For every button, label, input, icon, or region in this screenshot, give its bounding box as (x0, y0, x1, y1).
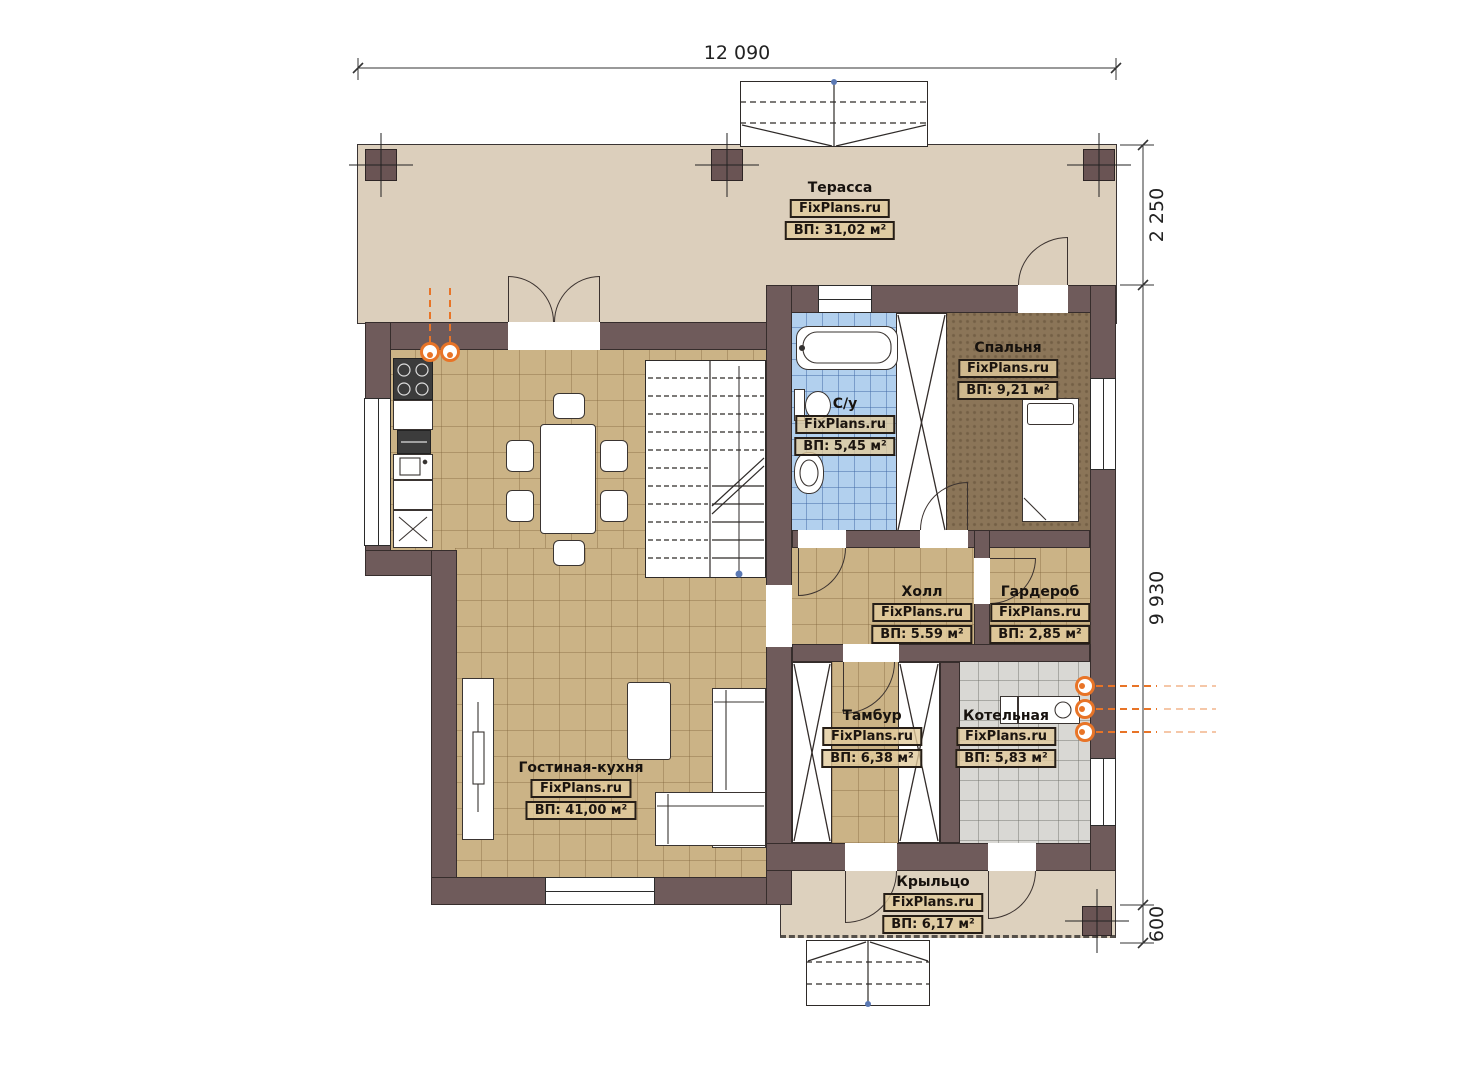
kitchen-sink (393, 454, 433, 480)
window (364, 398, 391, 546)
room-area: ВП: 5,45 м² (794, 437, 895, 456)
boiler-door-opening (988, 843, 1036, 871)
wall (431, 550, 457, 905)
room-area: ВП: 9,21 м² (957, 381, 1058, 400)
door-opening (920, 530, 968, 548)
fixplans-watermark: FixPlans.ru (531, 779, 631, 798)
room-area: ВП: 2,85 м² (989, 625, 1090, 644)
chair (506, 490, 534, 522)
room-area: ВП: 6,38 м² (821, 749, 922, 768)
wall (792, 644, 1090, 662)
chair (553, 540, 585, 566)
room-name: Гостиная-кухня (518, 760, 643, 776)
staircase (645, 360, 766, 578)
room-name: Тамбур (821, 708, 922, 724)
entrance-door-opening (845, 843, 897, 871)
door-opening (798, 530, 846, 548)
room-area: ВП: 41,00 м² (526, 801, 636, 820)
chair (600, 490, 628, 522)
kitchen-counter (393, 400, 433, 430)
floor-plan: 12 090 2 250 9 930 600 Терасса FixPlans.… (0, 0, 1473, 1080)
dimension-terrace-depth: 2 250 (1146, 188, 1168, 242)
fixplans-watermark: FixPlans.ru (822, 727, 922, 746)
pillow (1027, 403, 1074, 425)
window (1090, 378, 1116, 470)
window (545, 877, 655, 905)
room-label-bathroom: С/у FixPlans.ru ВП: 5,45 м² (794, 396, 895, 456)
room-label-porch: Крыльцо FixPlans.ru ВП: 6,17 м² (882, 874, 983, 934)
room-name: Крыльцо (882, 874, 983, 890)
column (1083, 149, 1115, 181)
dimension-top-width: 12 090 (704, 42, 770, 64)
fixplans-watermark: FixPlans.ru (790, 199, 890, 218)
tv-stand (462, 678, 494, 840)
fixplans-watermark: FixPlans.ru (883, 893, 983, 912)
dimension-house-depth: 9 930 (1146, 571, 1168, 625)
fixplans-watermark: FixPlans.ru (956, 727, 1056, 746)
dining-table (540, 424, 596, 534)
stove (393, 358, 433, 400)
room-label-bedroom: Спальня FixPlans.ru ВП: 9,21 м² (957, 340, 1058, 400)
porch-exterior-steps (806, 940, 930, 1006)
terrace-exterior-steps (740, 81, 928, 147)
wall (766, 843, 1116, 871)
fixplans-watermark: FixPlans.ru (958, 359, 1058, 378)
bathtub (796, 326, 898, 370)
sofa-chaise (655, 792, 766, 846)
room-label-hall: Холл FixPlans.ru ВП: 5.59 м² (871, 584, 972, 644)
pedestal-sink (794, 452, 824, 494)
room-name: Котельная (955, 708, 1056, 724)
room-label-vestibule: Тамбур FixPlans.ru ВП: 6,38 м² (821, 708, 922, 768)
window (818, 285, 872, 313)
room-label-boiler: Котельная FixPlans.ru ВП: 5,83 м² (955, 708, 1056, 768)
room-name: Спальня (957, 340, 1058, 356)
fixplans-watermark: FixPlans.ru (872, 603, 972, 622)
living-hall-opening (766, 585, 792, 647)
window (1090, 758, 1116, 826)
chair (600, 440, 628, 472)
column (711, 149, 743, 181)
fixplans-watermark: FixPlans.ru (990, 603, 1090, 622)
door-opening (974, 558, 990, 604)
kitchen-counter (393, 480, 433, 510)
room-name: С/у (794, 396, 895, 412)
dishwasher (393, 510, 433, 548)
fixplans-watermark: FixPlans.ru (795, 415, 895, 434)
room-label-living: Гостиная-кухня FixPlans.ru ВП: 41,00 м² (518, 760, 643, 820)
chair (506, 440, 534, 472)
room-area: ВП: 5,83 м² (955, 749, 1056, 768)
oven (397, 430, 431, 454)
room-label-terrace: Терасса FixPlans.ru ВП: 31,02 м² (785, 180, 895, 240)
room-area: ВП: 31,02 м² (785, 221, 895, 240)
room-name: Холл (871, 584, 972, 600)
room-area: ВП: 5.59 м² (871, 625, 972, 644)
column (365, 149, 397, 181)
chair (553, 393, 585, 419)
room-label-wardrobe: Гардероб FixPlans.ru ВП: 2,85 м² (989, 584, 1090, 644)
room-area: ВП: 6,17 м² (882, 915, 983, 934)
dimension-porch-depth: 600 (1146, 906, 1168, 942)
door-opening (843, 644, 899, 662)
room-name: Терасса (785, 180, 895, 196)
coffee-table (627, 682, 671, 760)
column (1082, 906, 1112, 936)
terrace-bedroom-door-opening (1018, 285, 1068, 313)
terrace-french-door-opening (508, 322, 600, 350)
room-name: Гардероб (989, 584, 1090, 600)
